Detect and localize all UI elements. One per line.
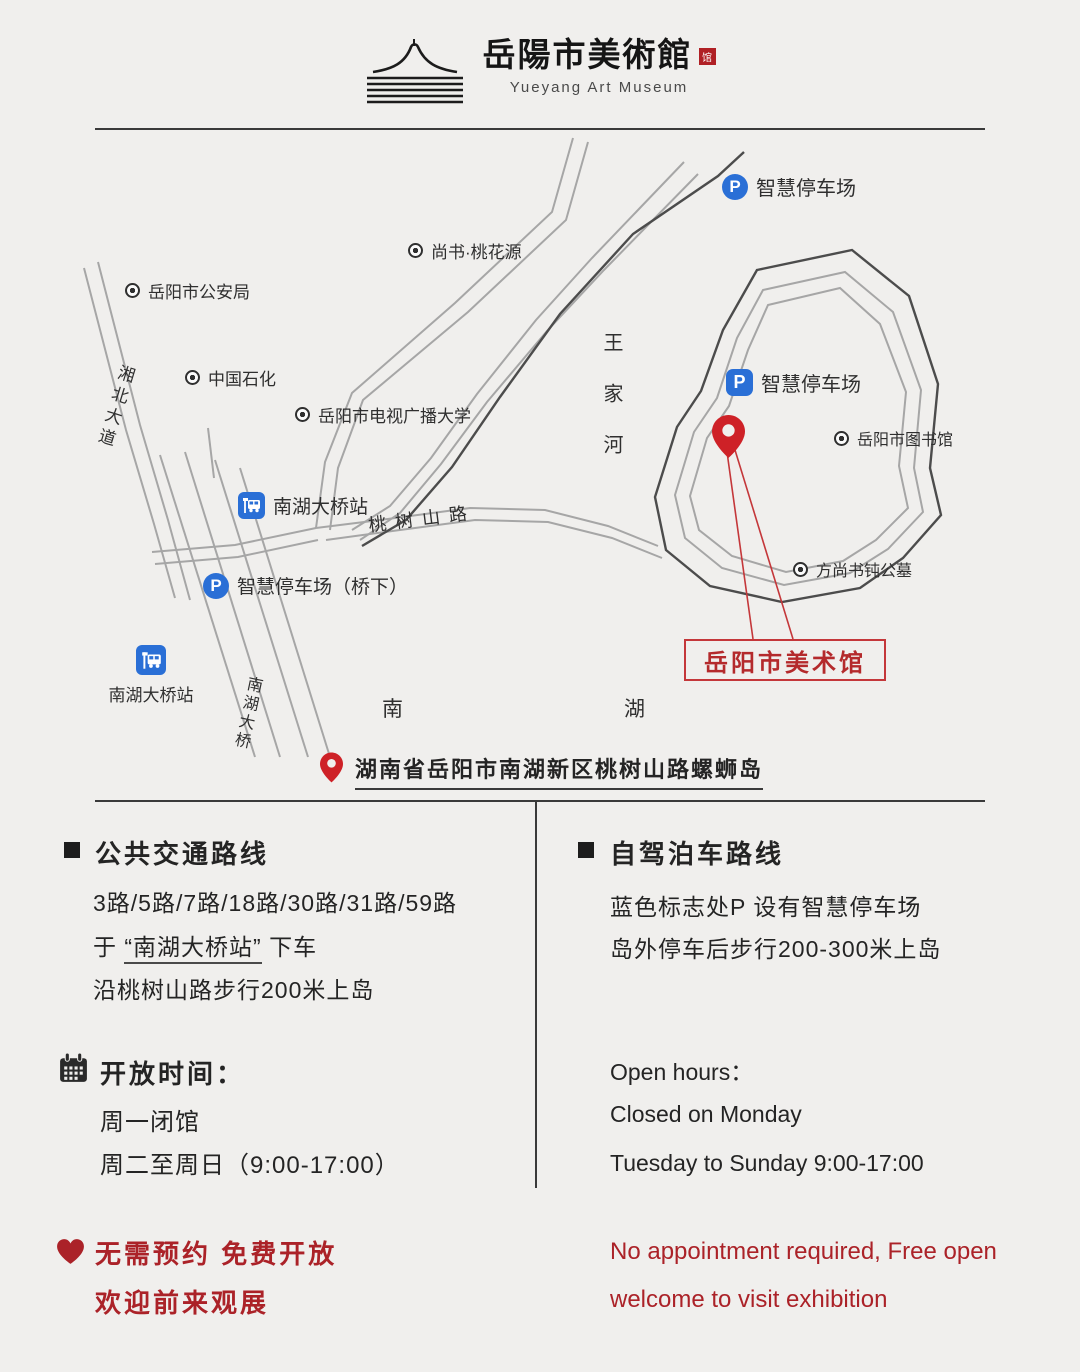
driving-line2: 岛外停车后步行200-300米上岛	[610, 930, 941, 964]
poi-label: 中国石化	[208, 365, 276, 390]
poi-parking-bridge: P 智慧停车场（桥下）	[203, 572, 408, 599]
poi-sinopec: 中国石化	[185, 365, 276, 390]
poi-label: 南湖大桥站	[273, 492, 368, 519]
lake-label-hu: 湖	[624, 693, 645, 723]
logo-seal: 馆	[699, 48, 716, 65]
poi-label: 智慧停车场（桥下）	[237, 572, 408, 599]
heart-icon	[55, 1238, 86, 1265]
hours-zh-line1: 周一闭馆	[100, 1102, 200, 1137]
poi-library: 岳阳市图书馆	[834, 426, 953, 450]
notice-en-line1: No appointment required, Free open	[610, 1238, 997, 1266]
poi-label: 岳阳市公安局	[148, 278, 250, 303]
poi-dot-icon	[125, 283, 140, 298]
calendar-icon	[57, 1052, 90, 1085]
poi-label: 方尚书钝公墓	[816, 557, 912, 581]
poi-label: 智慧停车场	[761, 368, 861, 397]
road	[330, 142, 588, 530]
column-divider	[535, 800, 537, 1188]
poi-dot-icon	[834, 431, 849, 446]
parking-icon: P	[726, 369, 753, 396]
poi-dot-icon	[408, 243, 423, 258]
poi-label: 岳阳市图书馆	[857, 426, 953, 450]
poi-parking-top: P 智慧停车场	[722, 172, 856, 201]
museum-pin-icon	[712, 415, 745, 458]
top-divider	[95, 128, 985, 130]
hours-en-line1: Closed on Monday	[610, 1101, 802, 1128]
hours-en-line2: Tuesday to Sunday 9:00-17:00	[610, 1150, 924, 1177]
bullet-icon	[578, 842, 594, 858]
bus-stop-icon	[136, 645, 166, 675]
hours-zh-title: 开放时间：	[100, 1054, 245, 1091]
bus-stop-icon	[238, 492, 265, 519]
poi-tomb: 方尚书钝公墓	[793, 557, 912, 581]
transit-stop-line: 于 “南湖大桥站” 下车	[93, 928, 317, 962]
pavilion-roof-icon	[365, 38, 465, 104]
hours-zh-line2: 周二至周日（9:00-17:00）	[100, 1145, 400, 1180]
poi-bus-top: 南湖大桥站	[238, 492, 368, 519]
poi-label: 岳阳市电视广播大学	[318, 402, 471, 427]
address-pin-icon	[320, 752, 343, 783]
callout-line	[735, 450, 793, 639]
poi-bus-bottom: 南湖大桥站	[106, 645, 196, 706]
poi-label: 尚书·桃花源	[431, 238, 522, 263]
poi-parking-island: P 智慧停车场	[726, 368, 861, 397]
river-label: 王家河	[597, 332, 626, 485]
address-row: 湖南省岳阳市南湖新区桃树山路螺蛳岛	[320, 752, 763, 790]
address-text: 湖南省岳阳市南湖新区桃树山路螺蛳岛	[355, 752, 763, 790]
poi-taohuayuan: 尚书·桃花源	[408, 238, 522, 263]
lake-label-nan: 南	[382, 693, 403, 723]
hours-en-title: Open hours：	[610, 1053, 753, 1087]
notice-zh-line2: 欢迎前来观展	[95, 1283, 269, 1320]
museum-logo: 岳陽市美術館 馆 Yueyang Art Museum	[0, 38, 1080, 104]
parking-icon: P	[722, 174, 748, 200]
transit-walk-line: 沿桃树山路步行200米上岛	[93, 971, 374, 1005]
callout-line	[727, 452, 753, 639]
logo-title-en: Yueyang Art Museum	[510, 79, 689, 96]
notice-en-line2: welcome to visit exhibition	[610, 1286, 887, 1314]
transit-stop-prefix: 于	[93, 934, 117, 960]
poi-label: 南湖大桥站	[106, 681, 196, 706]
poi-dot-icon	[295, 407, 310, 422]
road	[352, 162, 684, 530]
section-divider	[95, 800, 985, 802]
poi-dot-icon	[793, 562, 808, 577]
access-map: P 智慧停车场 尚书·桃花源 岳阳市公安局 中国石化 岳阳市电视广播大学 P 智…	[0, 135, 1080, 765]
driving-title: 自驾泊车路线	[610, 834, 784, 871]
poi-label: 智慧停车场	[756, 172, 856, 201]
museum-callout: 岳阳市美术馆	[684, 639, 886, 681]
driving-line1: 蓝色标志处P 设有智慧停车场	[610, 888, 921, 922]
road	[208, 428, 214, 478]
logo-title-zh: 岳陽市美術館	[483, 38, 693, 71]
transit-title: 公共交通路线	[95, 834, 269, 871]
bullet-icon	[64, 842, 80, 858]
parking-icon: P	[203, 573, 229, 599]
poi-police: 岳阳市公安局	[125, 278, 250, 303]
transit-stop-station: “南湖大桥站”	[124, 934, 261, 964]
transit-stop-suffix: 下车	[269, 934, 317, 960]
transit-routes: 3路/5路/7路/18路/30路/31路/59路	[93, 884, 457, 918]
poi-dot-icon	[185, 370, 200, 385]
notice-zh-line1: 无需预约 免费开放	[95, 1234, 337, 1271]
poi-university: 岳阳市电视广播大学	[295, 402, 471, 427]
